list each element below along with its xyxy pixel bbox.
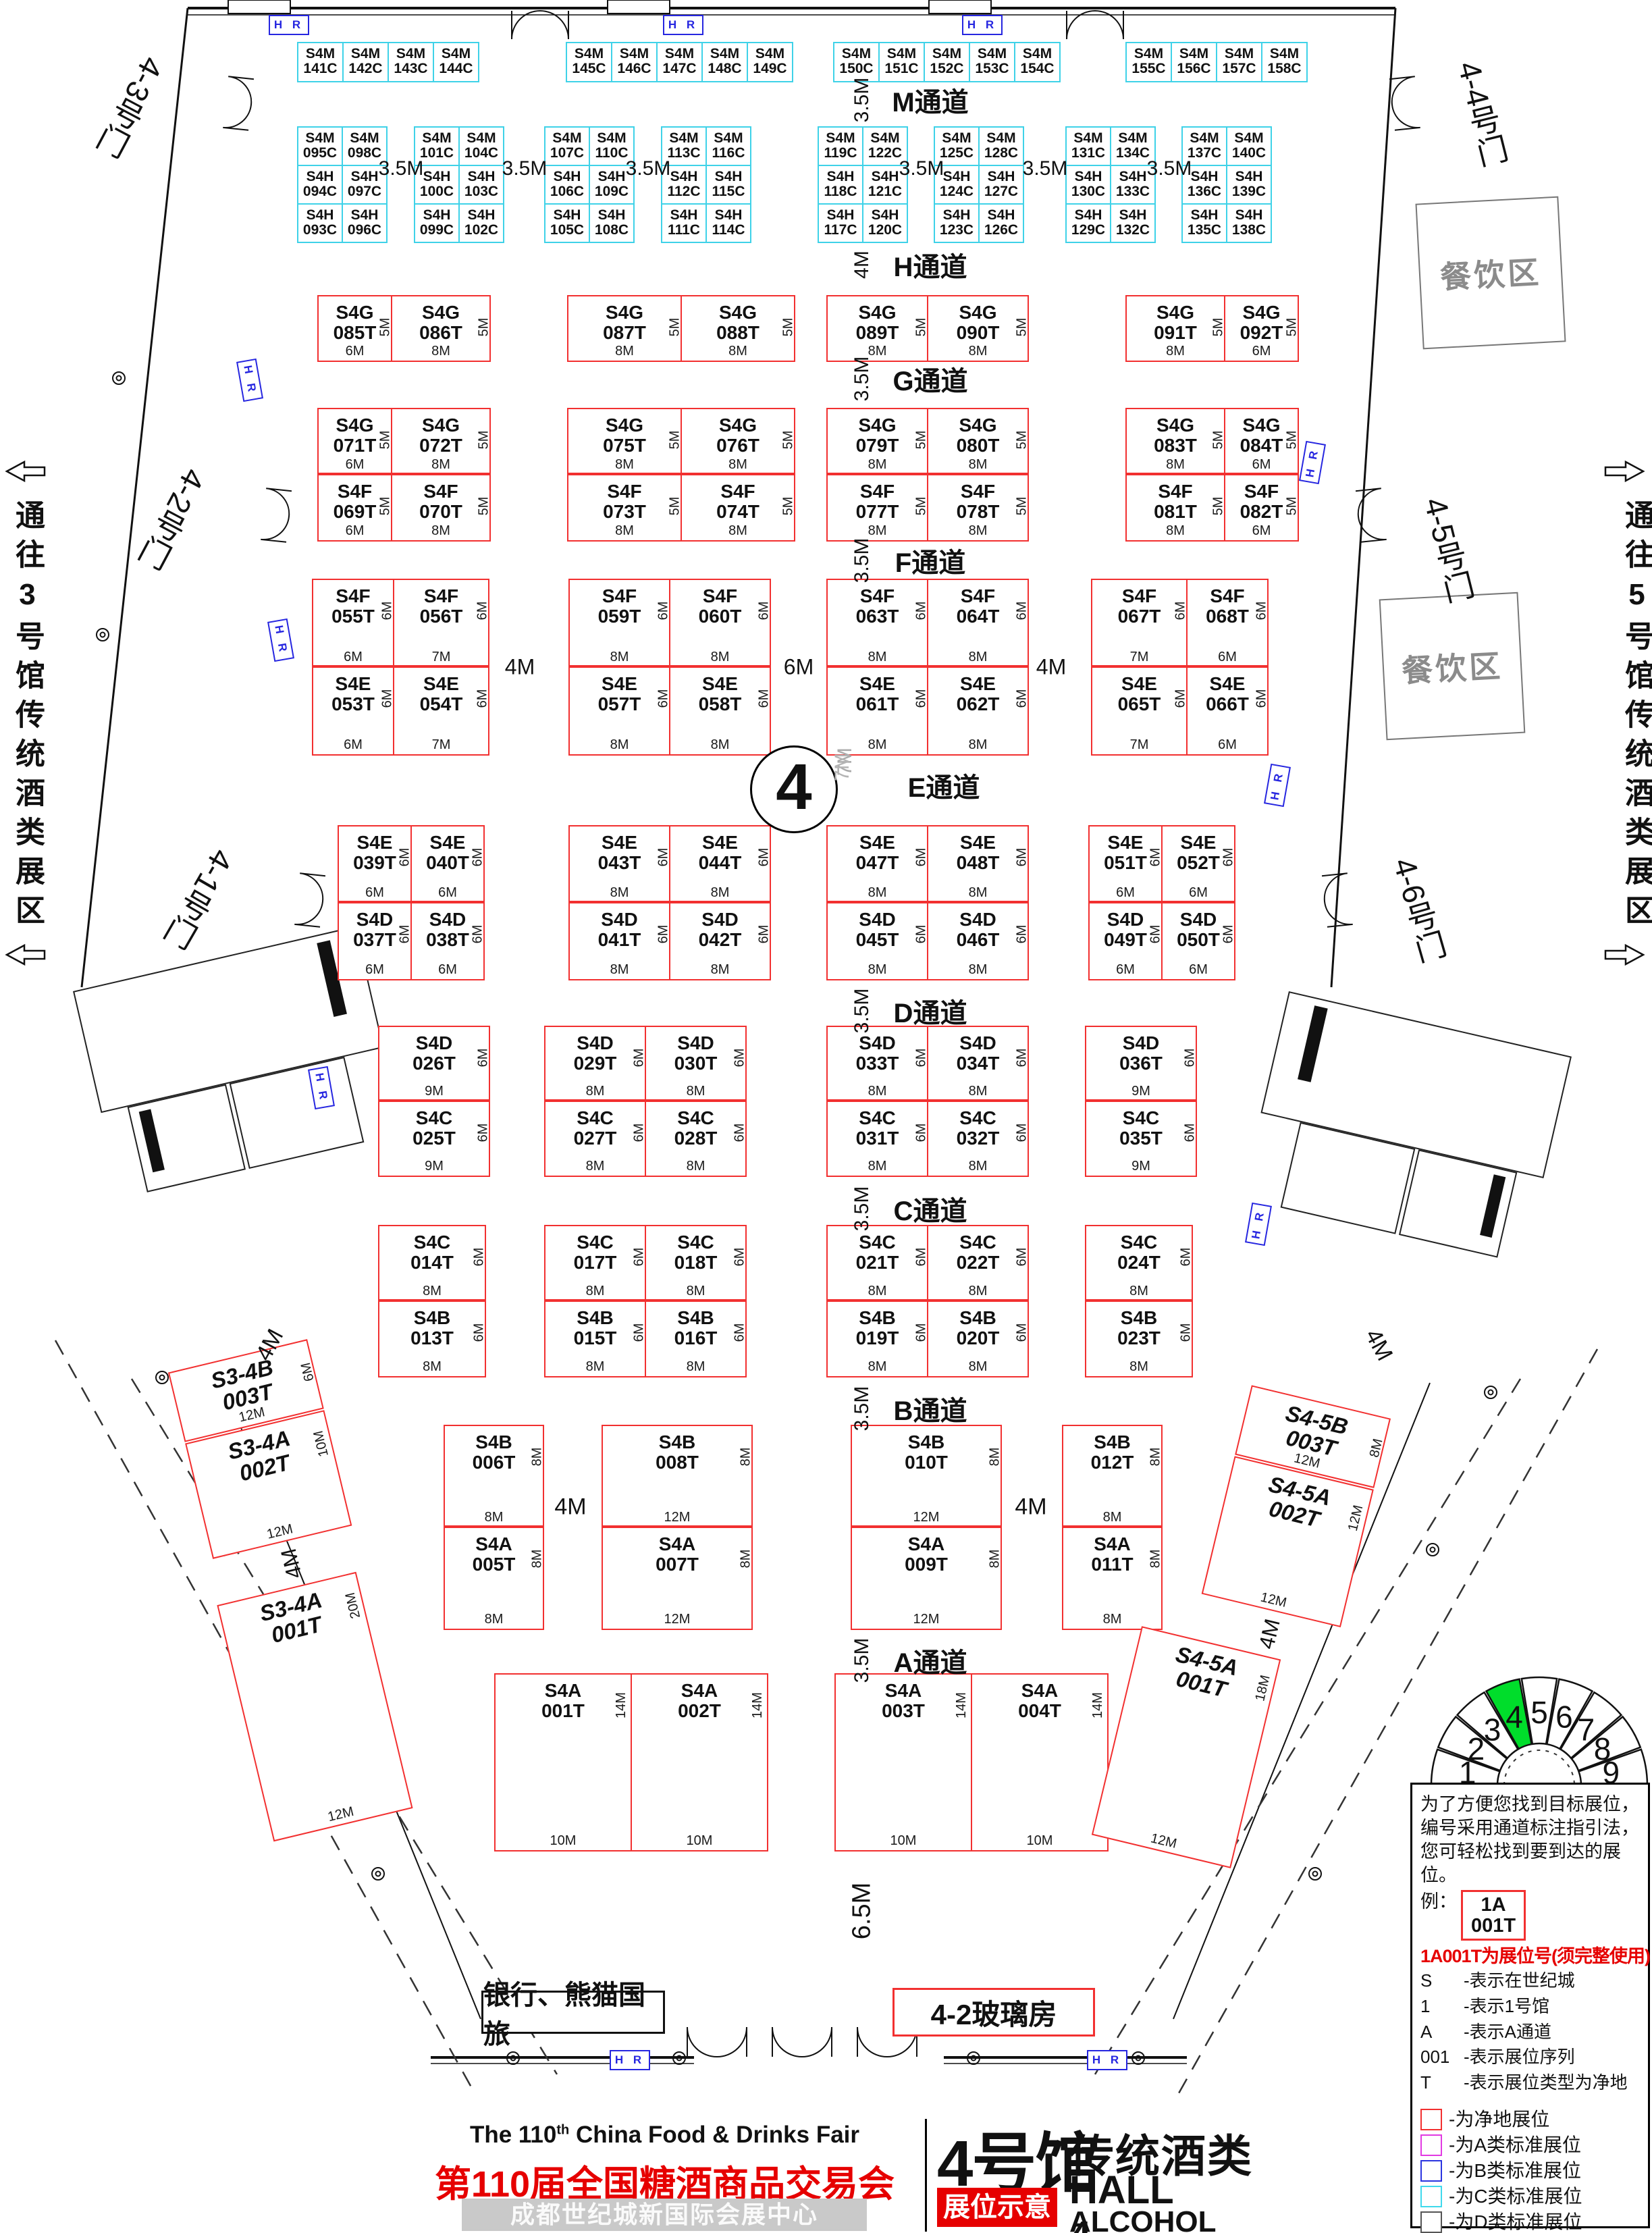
booth-height-label: 6M bbox=[472, 1248, 487, 1267]
booth-width-label: 8M bbox=[670, 962, 770, 978]
booth-id: S4H106C bbox=[545, 169, 589, 200]
booth-S4A-004T: S4A004T10M14M bbox=[971, 1673, 1109, 1851]
booth-S4G-079T: S4G079T8M5M bbox=[826, 408, 928, 475]
corridor-label-E: E通道 bbox=[908, 766, 980, 805]
booth-id: S4M148C bbox=[703, 47, 747, 77]
booth-width-label: 8M bbox=[928, 1084, 1028, 1099]
booth-height-label: 6M bbox=[1221, 848, 1237, 867]
booth-width-label: 6M bbox=[1225, 457, 1298, 473]
booth-row-divider bbox=[338, 901, 485, 903]
booth-id: S4M110C bbox=[590, 131, 633, 161]
booth-S4E-062T: S4E062T8M6M bbox=[927, 666, 1029, 756]
booth-S4E-044T: S4E044T8M6M bbox=[669, 825, 771, 903]
booth-id: S4B019T bbox=[828, 1308, 927, 1348]
aisle-label: 3.5M bbox=[851, 989, 874, 1034]
booth-S4E-047T: S4E047T8M6M bbox=[826, 825, 928, 903]
booth-id: S4M141C bbox=[298, 47, 342, 77]
booth-id: S4H138C bbox=[1227, 208, 1271, 238]
booth-S4C-032T: S4C032T8M6M bbox=[927, 1101, 1029, 1177]
booth-S3-4A-001T: S3-4A001T12M20M bbox=[217, 1572, 412, 1842]
booth-S4A-005T: S4A005T8M8M bbox=[444, 1527, 544, 1630]
booth-id: S4D034T bbox=[928, 1033, 1028, 1073]
booth-width-label: 7M bbox=[394, 737, 488, 753]
legend-def-S: S-表示在世纪城 bbox=[1420, 1968, 1641, 1994]
booth-width-label: 7M bbox=[1092, 650, 1186, 665]
booth-S4M-146C: S4M146C bbox=[611, 42, 658, 82]
booth-width-label: 8M bbox=[928, 344, 1028, 359]
booth-width-label: 8M bbox=[928, 962, 1028, 978]
booth-row-divider bbox=[1088, 901, 1235, 903]
booth-width-label: 6M bbox=[1188, 650, 1267, 665]
booth-id: S4M157C bbox=[1217, 47, 1261, 77]
booth-id: S4M131C bbox=[1067, 131, 1110, 161]
booth-S4C-024T: S4C024T8M6M bbox=[1085, 1225, 1193, 1302]
booth-S4F-078T: S4F078T8M5M bbox=[927, 474, 1029, 542]
booth-width-label: 8M bbox=[828, 1084, 927, 1099]
aisle-label: 4M bbox=[851, 251, 874, 279]
corridor-label-D: D通道 bbox=[894, 991, 967, 1030]
booth-width-label: 8M bbox=[568, 523, 681, 539]
booth-S4M-095C: S4M095C bbox=[297, 126, 343, 166]
booth-S4M-157C: S4M157C bbox=[1216, 42, 1262, 82]
booth-width-label: 8M bbox=[1063, 1612, 1161, 1627]
booth-width-label: 8M bbox=[682, 457, 794, 473]
booth-width-label: 12M bbox=[603, 1612, 751, 1627]
booth-width-label: 12M bbox=[1094, 1818, 1234, 1866]
hr-fire-box: H R bbox=[610, 2050, 650, 2070]
booth-id: S4M142C bbox=[344, 47, 388, 77]
booth-width-label: 6M bbox=[1090, 962, 1161, 978]
booth-row-divider bbox=[1091, 665, 1269, 668]
booth-S4F-059T: S4F059T8M6M bbox=[568, 579, 670, 668]
booth-id: S4A005T bbox=[445, 1534, 543, 1574]
booth-id: S4H132C bbox=[1111, 208, 1154, 238]
booth-S4F-055T: S4F055T6M6M bbox=[312, 579, 394, 668]
booth-id: S4G080T bbox=[928, 415, 1028, 455]
booth-row-divider bbox=[568, 665, 771, 668]
booth-id: S4C024T bbox=[1086, 1232, 1192, 1272]
booth-S4G-075T: S4G075T8M5M bbox=[567, 408, 682, 475]
booth-id: S4M134C bbox=[1111, 131, 1154, 161]
booth-id: S4H135C bbox=[1183, 208, 1226, 238]
booth-S4M-158C: S4M158C bbox=[1261, 42, 1308, 82]
booth-id: S4C014T bbox=[379, 1232, 485, 1272]
booth-S4H-135C: S4H135C bbox=[1181, 203, 1227, 243]
booth-S4C-017T: S4C017T8M6M bbox=[544, 1225, 646, 1302]
door-arc-icon bbox=[261, 488, 292, 542]
booth-id: S4M152C bbox=[925, 47, 969, 77]
booth-id: S4M107C bbox=[545, 131, 589, 161]
booth-id: S4M158C bbox=[1262, 47, 1306, 77]
booth-row-divider bbox=[826, 665, 1029, 668]
booth-S4F-060T: S4F060T8M6M bbox=[669, 579, 771, 668]
booth-S4H-114C: S4H114C bbox=[705, 203, 751, 243]
glass-house-box: 4-2玻璃房 bbox=[892, 1988, 1095, 2037]
booth-width-label: 8M bbox=[379, 1359, 485, 1375]
corridor-label-C: C通道 bbox=[894, 1189, 967, 1228]
booth-id: S4H129C bbox=[1067, 208, 1110, 238]
booth-id: S4H103C bbox=[460, 169, 503, 200]
booth-id: S4B023T bbox=[1086, 1308, 1192, 1348]
hr-fire-box: H R bbox=[962, 15, 1003, 35]
booth-id: S4M146C bbox=[612, 47, 656, 77]
booth-row-divider bbox=[826, 901, 1029, 903]
booth-row-divider bbox=[851, 1525, 1002, 1528]
booth-id: S4B016T bbox=[646, 1308, 745, 1348]
booth-width-label: 10M bbox=[972, 1833, 1107, 1849]
booth-S4M-143C: S4M143C bbox=[388, 42, 434, 82]
booth-height-label: 5M bbox=[781, 497, 797, 516]
booth-height-label: 14M bbox=[614, 1692, 629, 1718]
venue-name: 成都世纪城新国际会展中心 bbox=[462, 2199, 867, 2231]
booth-width-label: 10M bbox=[496, 1833, 631, 1849]
booth-width-label: 8M bbox=[445, 1510, 543, 1525]
booth-width-label: 8M bbox=[670, 885, 770, 901]
hr-fire-box: H R bbox=[663, 15, 703, 35]
booth-id: S4A004T bbox=[972, 1681, 1107, 1720]
booth-id: S4F070T bbox=[392, 481, 489, 521]
corridor-label-M: M通道 bbox=[892, 80, 968, 120]
booth-S4H-093C: S4H093C bbox=[297, 203, 343, 243]
booth-height-label: 6M bbox=[476, 1124, 491, 1142]
booth-S4D-026T: S4D026T9M6M bbox=[378, 1026, 490, 1102]
booth-id: S4C032T bbox=[928, 1108, 1028, 1148]
booth-id: S4D041T bbox=[570, 910, 669, 949]
booth-S4M-141C: S4M141C bbox=[297, 42, 344, 82]
booth-width-label: 8M bbox=[828, 1359, 927, 1375]
booth-height-label: 8M bbox=[1148, 1448, 1164, 1467]
booth-height-label: 6M bbox=[732, 1049, 748, 1068]
booth-S4F-063T: S4F063T8M6M bbox=[826, 579, 928, 668]
door-arc-icon bbox=[1389, 76, 1420, 130]
booth-row-divider bbox=[826, 1299, 1029, 1302]
booth-row-divider bbox=[602, 1525, 753, 1528]
booth-height-label: 6M bbox=[476, 1049, 491, 1068]
booth-width-label: 8M bbox=[545, 1159, 645, 1174]
booth-id: S4M150C bbox=[834, 47, 878, 77]
booth-id: S4E054T bbox=[394, 674, 488, 714]
booth-width-label: 8M bbox=[568, 457, 681, 473]
booth-row-divider bbox=[1062, 1525, 1163, 1528]
booth-height-label: 6M bbox=[1015, 1248, 1030, 1267]
booth-id: S4G091T bbox=[1127, 303, 1224, 342]
booth-S4G-083T: S4G083T8M5M bbox=[1125, 408, 1225, 475]
booth-id: S4M116C bbox=[707, 131, 750, 161]
booth-id: S4G089T bbox=[828, 303, 927, 342]
booth-id: S4E058T bbox=[670, 674, 770, 714]
booth-width-label: 6M bbox=[1163, 885, 1234, 901]
booth-width-label: 6M bbox=[339, 885, 410, 901]
booth-id: S4D042T bbox=[670, 910, 770, 949]
booth-S4H-118C: S4H118C bbox=[818, 165, 863, 205]
booth-id: S4D036T bbox=[1086, 1033, 1196, 1073]
corridor-label-B: B通道 bbox=[894, 1389, 967, 1428]
booth-height-label: 8M bbox=[1367, 1438, 1387, 1459]
hall-locator: 123456789 bbox=[1410, 1660, 1652, 1795]
booth-id: S4F074T bbox=[682, 481, 794, 521]
booth-S4H-120C: S4H120C bbox=[862, 203, 908, 243]
booth-id: S4M104C bbox=[460, 131, 503, 161]
booth-S4B-016T: S4B016T8M6M bbox=[645, 1301, 747, 1377]
fair-title-en: The 110th China Food & Drinks Fair bbox=[413, 2122, 916, 2149]
booth-id: S4A001T bbox=[496, 1681, 631, 1720]
booth-S4G-085T: S4G085T6M5M bbox=[317, 295, 392, 362]
aisle-label: 3.5M bbox=[851, 78, 874, 123]
booth-width-label: 6M bbox=[339, 962, 410, 978]
legend-sample-line1: 1A bbox=[1464, 1895, 1522, 1915]
legend-example-label: 例： bbox=[1420, 1890, 1457, 1914]
booth-width-label: 8M bbox=[670, 737, 770, 753]
booth-S4D-029T: S4D029T8M6M bbox=[544, 1026, 646, 1102]
booth-width-label: 8M bbox=[1086, 1359, 1192, 1375]
booth-id: S4D033T bbox=[828, 1033, 927, 1073]
aisle-label: 6.5M bbox=[848, 1883, 877, 1939]
booth-id: S4H105C bbox=[545, 208, 589, 238]
booth-S4H-130C: S4H130C bbox=[1065, 165, 1111, 205]
booth-width-label: 8M bbox=[828, 650, 927, 665]
booth-height-label: 6M bbox=[757, 848, 772, 867]
booth-height-label: 6M bbox=[475, 602, 491, 621]
booth-height-label: 6M bbox=[757, 925, 772, 944]
legend-item: -为D类标准展位 bbox=[1420, 2209, 1641, 2233]
legend-panel: 为了方便您找到目标展位，编号采用通道标注指引法，您可轻松找到要到达的展位。 例：… bbox=[1410, 1783, 1650, 2228]
booth-S4G-071T: S4G071T6M5M bbox=[317, 408, 392, 475]
booth-id: S4B006T bbox=[445, 1432, 543, 1472]
booth-id: S4M137C bbox=[1183, 131, 1226, 161]
booth-S4D-050T: S4D050T6M6M bbox=[1161, 902, 1235, 980]
booth-width-label: 8M bbox=[828, 1159, 927, 1174]
booth-id: S4H139C bbox=[1227, 169, 1271, 200]
booth-id: S4F078T bbox=[928, 481, 1028, 521]
booth-S4B-020T: S4B020T8M6M bbox=[927, 1301, 1029, 1377]
booth-S4E-048T: S4E048T8M6M bbox=[927, 825, 1029, 903]
booth-width-label: 8M bbox=[392, 523, 489, 539]
booth-id: S4H120C bbox=[863, 208, 907, 238]
booth-id: S4B008T bbox=[603, 1432, 751, 1472]
aisle-label: 4M bbox=[505, 655, 535, 680]
booth-S4B-013T: S4B013T8M6M bbox=[378, 1301, 486, 1377]
booth-S4D-041T: S4D041T8M6M bbox=[568, 902, 670, 980]
booth-row-divider bbox=[444, 1525, 544, 1528]
booth-width-label: 8M bbox=[828, 1284, 927, 1299]
booth-height-label: 6M bbox=[1015, 1323, 1030, 1342]
door-arc-icon bbox=[294, 873, 325, 927]
booth-id: S4M122C bbox=[863, 131, 907, 161]
aisle-label: 3.5M bbox=[1147, 157, 1192, 180]
booth-height-label: 6M bbox=[757, 689, 772, 708]
booth-width-label: 8M bbox=[445, 1612, 543, 1627]
booth-S4A-001T: S4A001T10M14M bbox=[494, 1673, 632, 1851]
booth-S4C-027T: S4C027T8M6M bbox=[544, 1101, 646, 1177]
aisle-label: 3.5M bbox=[851, 1186, 874, 1232]
booth-width-label: 6M bbox=[319, 344, 391, 359]
booth-width-label: 8M bbox=[928, 523, 1028, 539]
booth-height-label: 8M bbox=[530, 1448, 545, 1467]
booth-height-label: 8M bbox=[739, 1448, 754, 1467]
booth-S4B-015T: S4B015T8M6M bbox=[544, 1301, 646, 1377]
booth-S4F-068T: S4F068T6M6M bbox=[1186, 579, 1269, 668]
corridor-label-G: G通道 bbox=[892, 359, 967, 398]
booth-S4G-087T: S4G087T8M5M bbox=[567, 295, 682, 362]
booth-id: S4G083T bbox=[1127, 415, 1224, 455]
locator-hall-number: 4 bbox=[1506, 1700, 1523, 1735]
booth-id: S4G088T bbox=[682, 303, 794, 342]
direction-arrow-icon bbox=[7, 945, 45, 964]
booth-S4G-086T: S4G086T8M5M bbox=[391, 295, 491, 362]
aisle-label: 7M bbox=[831, 753, 854, 781]
booth-id: S4M140C bbox=[1227, 131, 1271, 161]
booth-S4C-025T: S4C025T9M6M bbox=[378, 1101, 490, 1177]
booth-id: S4F073T bbox=[568, 481, 681, 521]
booth-height-label: 6M bbox=[1015, 602, 1030, 621]
booth-width-label: 8M bbox=[928, 457, 1028, 473]
booth-width-label: 8M bbox=[928, 1159, 1028, 1174]
aisle-label: 3.5M bbox=[851, 1638, 874, 1683]
door-arc-icon bbox=[687, 2027, 747, 2057]
booth-S4G-076T: S4G076T8M5M bbox=[681, 408, 795, 475]
legend-sample-booth: 1A 001T bbox=[1461, 1890, 1526, 1941]
booth-height-label: 5M bbox=[781, 318, 797, 337]
booth-S4B-008T: S4B008T12M8M bbox=[602, 1425, 753, 1528]
booth-height-label: 6M bbox=[1015, 848, 1030, 867]
booth-row-divider bbox=[567, 473, 795, 475]
booth-S4F-064T: S4F064T8M6M bbox=[927, 579, 1029, 668]
direction-arrow-icon bbox=[1605, 462, 1643, 481]
legend-color-swatch bbox=[1420, 2211, 1442, 2233]
booth-width-label: 8M bbox=[928, 885, 1028, 901]
booth-width-label: 6M bbox=[313, 737, 393, 753]
booth-id: S4M143C bbox=[389, 47, 433, 77]
aisle-label: 3.5M bbox=[851, 357, 874, 402]
booth-width-label: 8M bbox=[646, 1084, 745, 1099]
booth-S4E-065T: S4E065T7M6M bbox=[1091, 666, 1188, 756]
booth-id: S4E047T bbox=[828, 833, 927, 872]
booth-id: S4E044T bbox=[670, 833, 770, 872]
side-text-left: 通往3号馆传统酒类展区 bbox=[5, 500, 49, 934]
booth-S4M-150C: S4M150C bbox=[833, 42, 880, 82]
booth-S4E-061T: S4E061T8M6M bbox=[826, 666, 928, 756]
dining-area-1: 餐饮区 bbox=[1415, 196, 1566, 350]
booth-S4D-045T: S4D045T8M6M bbox=[826, 902, 928, 980]
booth-width-label: 6M bbox=[1090, 885, 1161, 901]
booth-width-label: 12M bbox=[271, 1791, 411, 1839]
aisle-label: 3.5M bbox=[851, 1386, 874, 1431]
side-text-right: 通往5号馆传统酒类展区 bbox=[1615, 500, 1652, 934]
booth-S4G-080T: S4G080T8M5M bbox=[927, 408, 1029, 475]
booth-S4B-006T: S4B006T8M8M bbox=[444, 1425, 544, 1528]
booth-S4M-154C: S4M154C bbox=[1014, 42, 1061, 82]
booth-width-label: 6M bbox=[412, 962, 483, 978]
booth-row-divider bbox=[1085, 1099, 1197, 1102]
booth-width-label: 10M bbox=[632, 1833, 767, 1849]
booth-S4H-108C: S4H108C bbox=[589, 203, 635, 243]
booth-width-label: 9M bbox=[1086, 1159, 1196, 1174]
booth-id: S4G079T bbox=[828, 415, 927, 455]
aisle-label: 3.5M bbox=[899, 157, 944, 180]
booth-S4M-116C: S4M116C bbox=[705, 126, 751, 166]
booth-width-label: 8M bbox=[1127, 523, 1224, 539]
booth-height-label: 6M bbox=[1183, 1124, 1198, 1142]
booth-height-label: 6M bbox=[757, 602, 772, 621]
booth-S4A-007T: S4A007T12M8M bbox=[602, 1527, 753, 1630]
booth-S4M-144C: S4M144C bbox=[433, 42, 479, 82]
booth-id: S4M113C bbox=[662, 131, 705, 161]
booth-S4M-156C: S4M156C bbox=[1171, 42, 1217, 82]
booth-id: S4E043T bbox=[570, 833, 669, 872]
booth-id: S4H094C bbox=[298, 169, 342, 200]
hall-category-en: ALCOHOL bbox=[1069, 2205, 1217, 2233]
title-divider bbox=[925, 2119, 927, 2232]
legend-color-swatch bbox=[1420, 2186, 1442, 2207]
booth-S4H-138C: S4H138C bbox=[1226, 203, 1272, 243]
booth-width-label: 7M bbox=[394, 650, 488, 665]
direction-arrow-icon bbox=[7, 462, 45, 481]
booth-S4F-081T: S4F081T8M5M bbox=[1125, 474, 1225, 542]
booth-S4M-149C: S4M149C bbox=[747, 42, 793, 82]
booth-id: S4D046T bbox=[928, 910, 1028, 949]
booth-id: S4C018T bbox=[646, 1232, 745, 1272]
booth-id: S4H115C bbox=[707, 169, 750, 200]
booth-id: S4C031T bbox=[828, 1108, 927, 1148]
booth-S4C-021T: S4C021T8M6M bbox=[826, 1225, 928, 1302]
booth-id: S4M149C bbox=[748, 47, 792, 77]
aisle-label: 3.5M bbox=[626, 157, 671, 180]
booth-row-divider bbox=[1085, 1299, 1193, 1302]
booth-id: S4M128C bbox=[980, 131, 1023, 161]
booth-id: S4H093C bbox=[298, 208, 342, 238]
booth-id: S4M156C bbox=[1172, 47, 1216, 77]
booth-id: S4G075T bbox=[568, 415, 681, 455]
booth-width-label: 8M bbox=[682, 344, 794, 359]
booth-width-label: 8M bbox=[928, 650, 1028, 665]
booth-row-divider bbox=[544, 1299, 747, 1302]
booth-id: S4B020T bbox=[928, 1308, 1028, 1348]
booth-S4C-022T: S4C022T8M6M bbox=[927, 1225, 1029, 1302]
booth-S4A-003T: S4A003T10M14M bbox=[834, 1673, 972, 1851]
booth-width-label: 8M bbox=[379, 1284, 485, 1299]
booth-S4M-153C: S4M153C bbox=[969, 42, 1015, 82]
booth-id: S4G087T bbox=[568, 303, 681, 342]
corridor-label-A: A通道 bbox=[894, 1641, 967, 1680]
booth-width-label: 8M bbox=[570, 737, 669, 753]
booth-id: S4M098C bbox=[343, 131, 386, 161]
dining-area-2: 餐饮区 bbox=[1379, 592, 1526, 740]
legend-item: -为净地展位 bbox=[1420, 2107, 1641, 2132]
aisle-label: 3.5M bbox=[379, 157, 424, 180]
booth-id: S4G086T bbox=[392, 303, 489, 342]
booth-id: S4D029T bbox=[545, 1033, 645, 1073]
booth-S4M-151C: S4M151C bbox=[878, 42, 925, 82]
booth-id: S4G072T bbox=[392, 415, 489, 455]
booth-S4C-028T: S4C028T8M6M bbox=[645, 1101, 747, 1177]
booth-width-label: 8M bbox=[1127, 457, 1224, 473]
booth-width-label: 8M bbox=[1127, 344, 1224, 359]
booth-id: S4H130C bbox=[1067, 169, 1110, 200]
booth-S4F-077T: S4F077T8M5M bbox=[826, 474, 928, 542]
aisle-label: 3.5M bbox=[851, 538, 874, 583]
booth-S4E-043T: S4E043T8M6M bbox=[568, 825, 670, 903]
booth-row-divider bbox=[1125, 473, 1299, 475]
legend-color-swatch bbox=[1420, 2134, 1442, 2156]
booth-S4G-088T: S4G088T8M5M bbox=[681, 295, 795, 362]
booth-S4G-090T: S4G090T8M5M bbox=[927, 295, 1029, 362]
booth-width-label: 12M bbox=[1204, 1577, 1344, 1625]
booth-S4A-009T: S4A009T12M8M bbox=[851, 1527, 1002, 1630]
booth-height-label: 6M bbox=[732, 1124, 748, 1142]
hr-fire-box: H R bbox=[269, 15, 309, 35]
booth-height-label: 8M bbox=[739, 1550, 754, 1569]
booth-S4F-073T: S4F073T8M5M bbox=[567, 474, 682, 542]
